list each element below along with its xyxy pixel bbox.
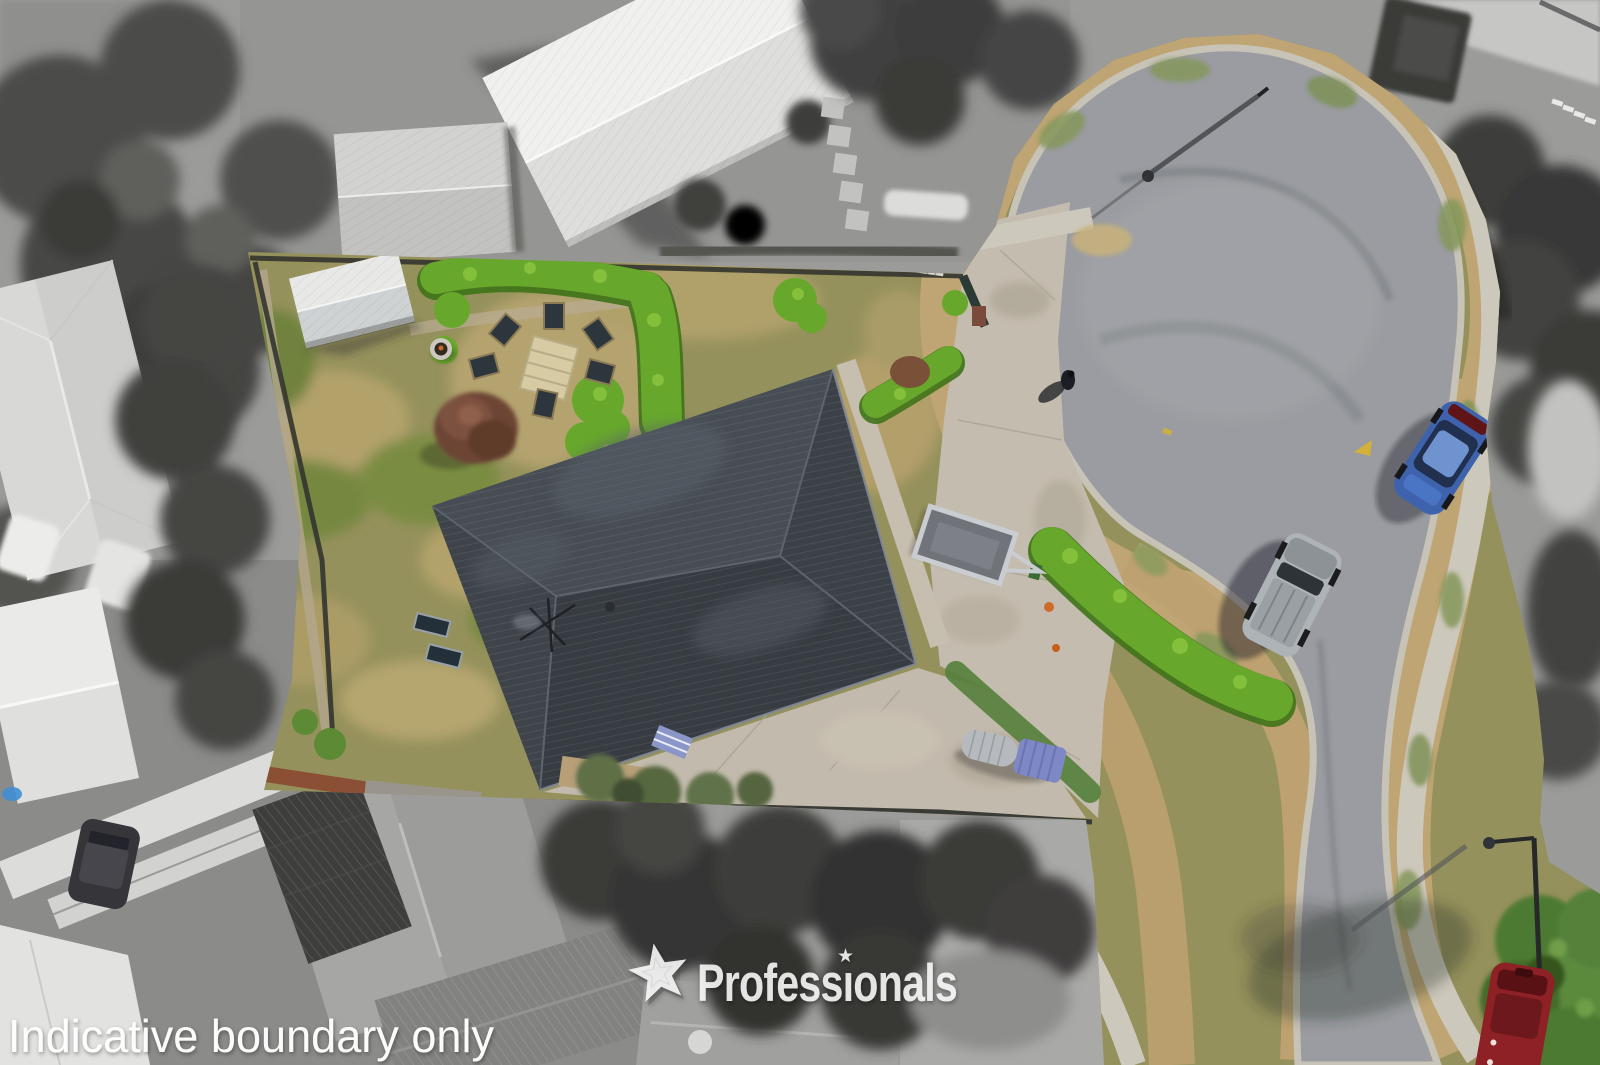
neighbor-shed-roof: [334, 122, 525, 264]
caption-indicative-boundary: Indicative boundary only: [8, 1010, 494, 1062]
caption: Indicative boundary only: [8, 1010, 494, 1062]
aerial-property-photo: Professıonals ★ Indicative boundary only: [0, 0, 1600, 1065]
watermark-text: Professıonals: [697, 954, 957, 1013]
watermark-star-dot-icon: ★: [837, 946, 854, 967]
